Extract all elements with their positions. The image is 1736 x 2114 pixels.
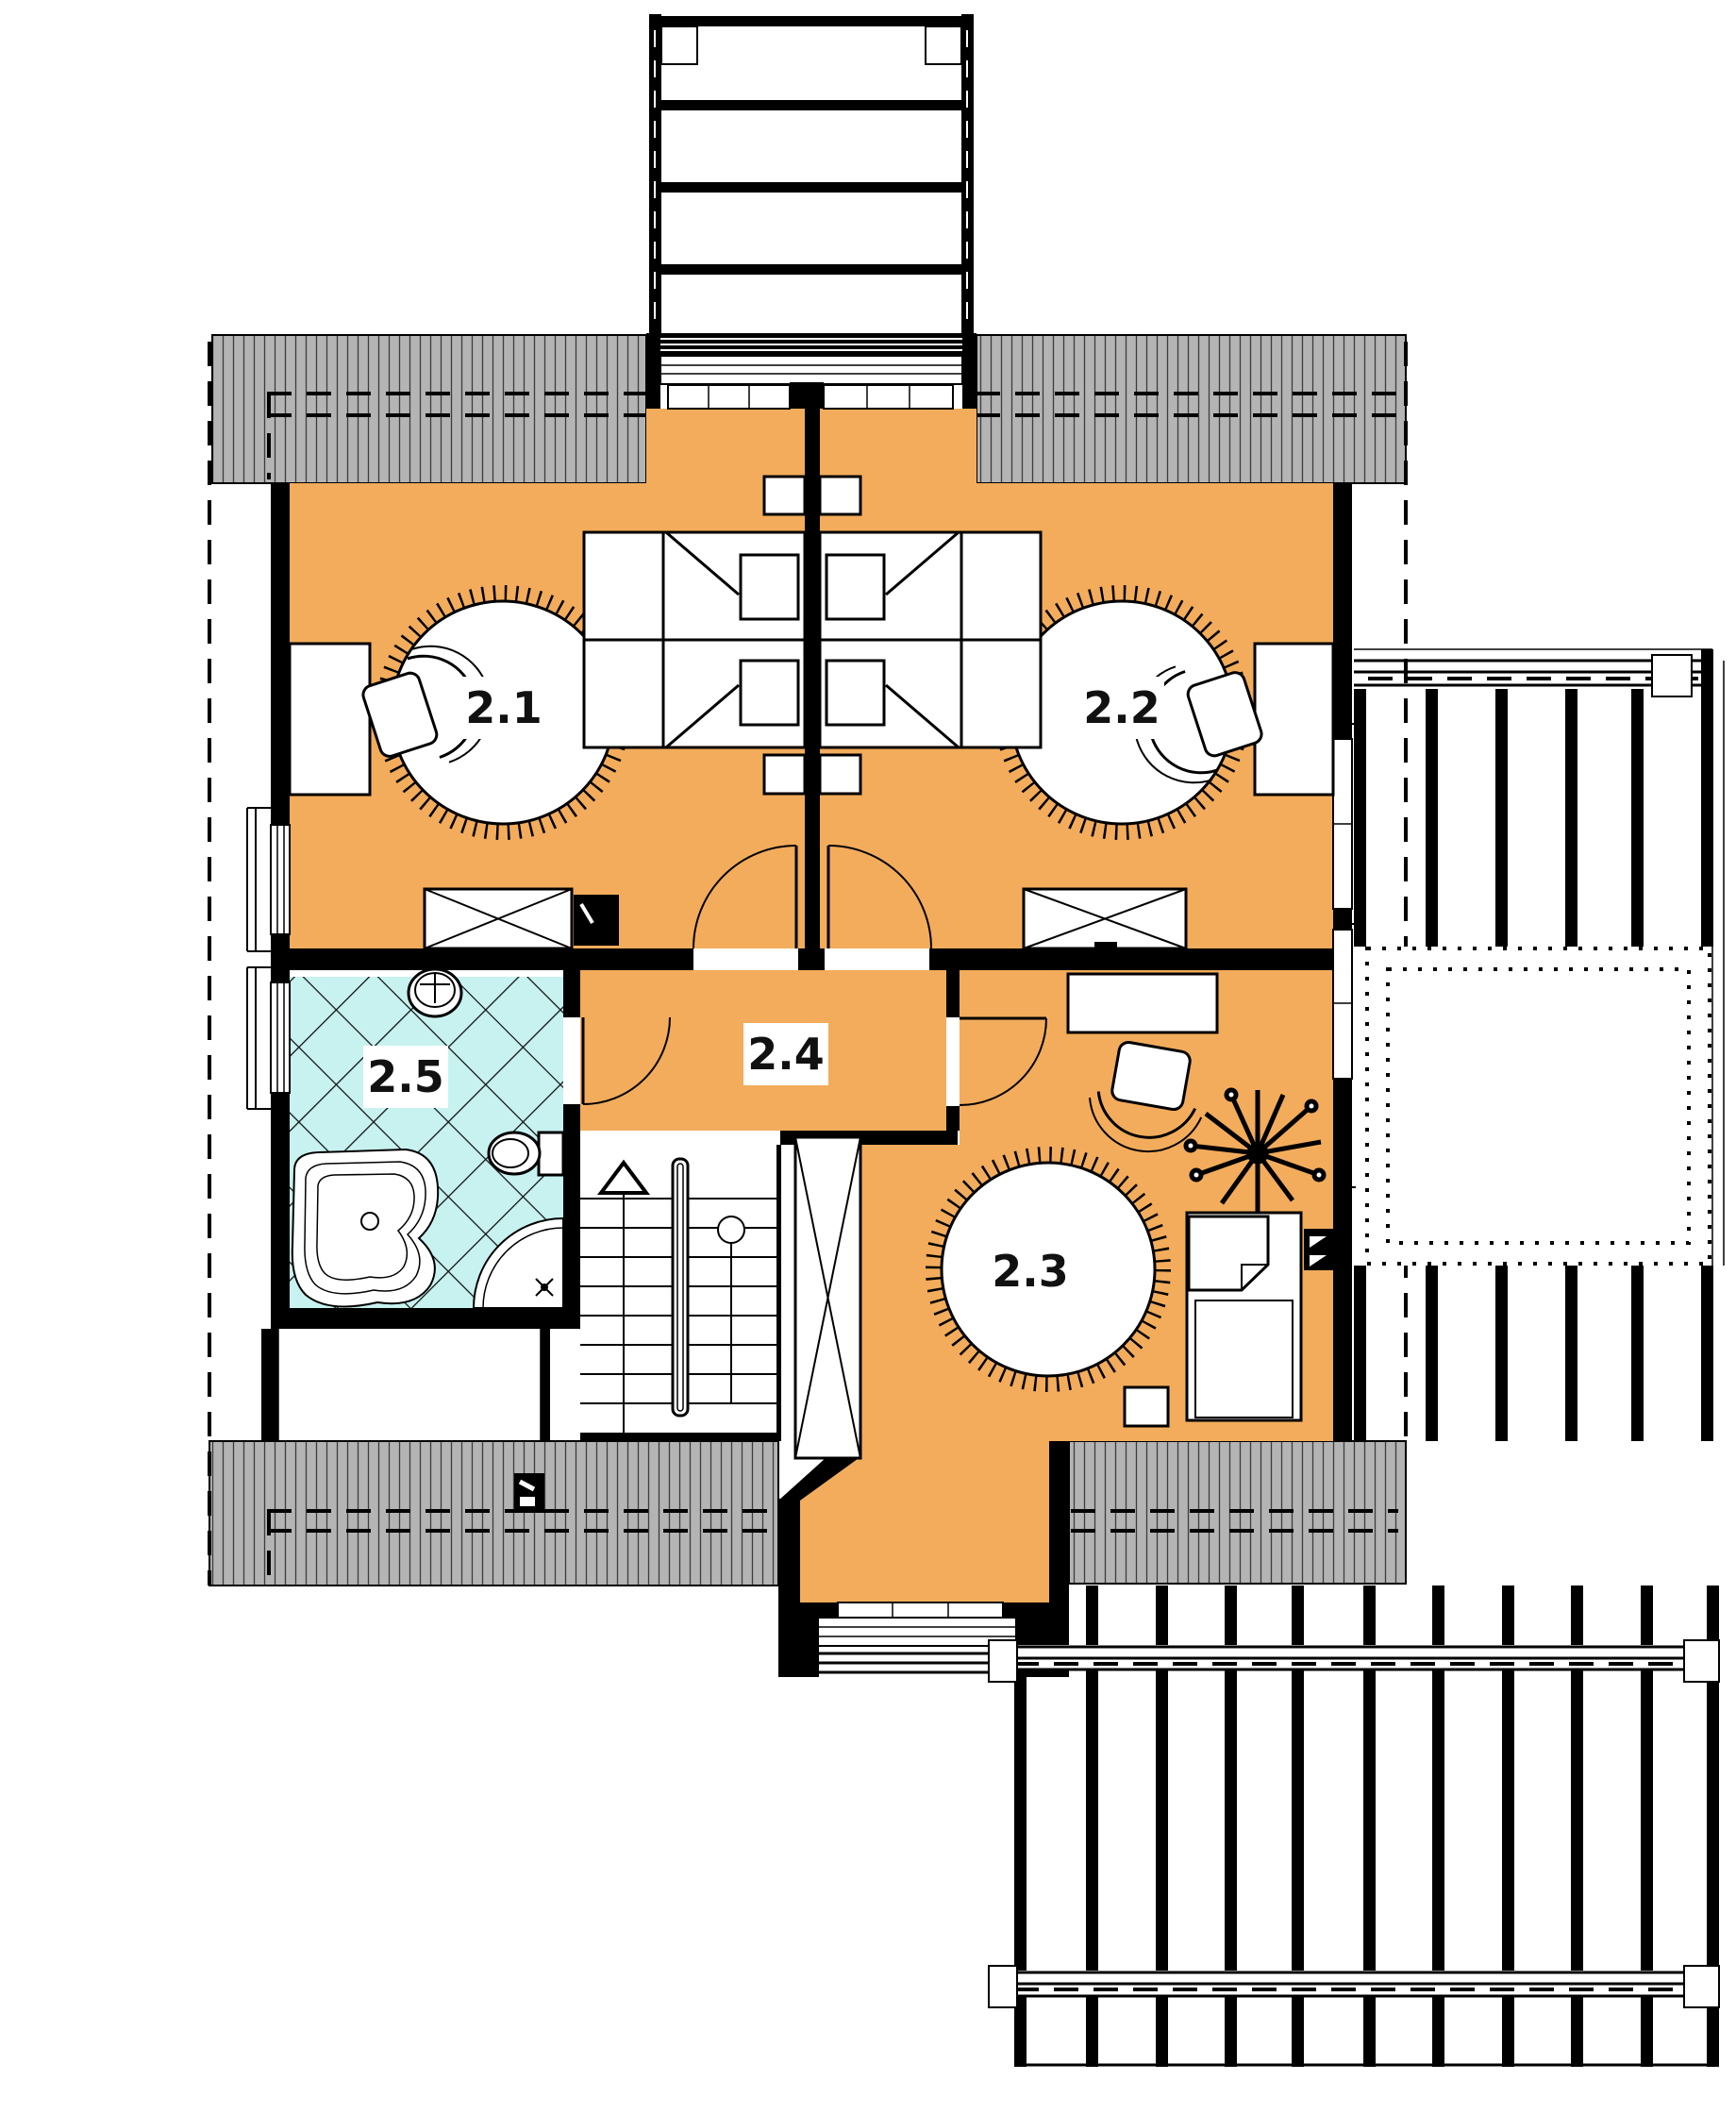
wardrobe xyxy=(1024,889,1186,949)
nightstand xyxy=(764,477,805,514)
floor-plan-canvas: 2.1 2.2 2.3 2.4 2.5 xyxy=(0,0,1736,2114)
balcony-corner-bracket-left xyxy=(661,26,697,64)
blanket xyxy=(1195,1300,1293,1418)
pergola-end-bracket xyxy=(1652,655,1692,696)
desk xyxy=(1068,974,1217,1032)
tv-wall-unit xyxy=(1304,1229,1333,1270)
washbasin xyxy=(409,969,461,1016)
pillow xyxy=(741,555,798,619)
balcony-window xyxy=(838,1602,1003,1618)
nightstand xyxy=(820,755,860,794)
center-partition-wall xyxy=(805,409,820,948)
pillow xyxy=(741,661,798,725)
single-bed xyxy=(1187,1213,1301,1420)
room-label-2-5: 2.5 xyxy=(367,1051,444,1102)
pillow xyxy=(826,555,884,619)
balcony-corner-bracket-right xyxy=(926,26,961,64)
stool xyxy=(1125,1387,1168,1426)
double-bed xyxy=(584,532,805,747)
tv-cabinet xyxy=(574,895,619,946)
pillow xyxy=(826,661,884,725)
nightstand xyxy=(820,477,860,514)
desk xyxy=(1255,644,1333,795)
nightstand xyxy=(764,755,805,794)
room-label-2-4: 2.4 xyxy=(747,1029,825,1080)
room-label-2-2: 2.2 xyxy=(1083,682,1160,733)
toilet xyxy=(489,1132,563,1175)
desk xyxy=(290,644,370,795)
dormer-window-left-pane xyxy=(668,385,790,409)
dormer-window-right-pane xyxy=(824,385,953,409)
tall-wardrobe xyxy=(795,1137,860,1458)
room-label-2-1: 2.1 xyxy=(465,682,542,733)
room-label-2-3: 2.3 xyxy=(992,1246,1069,1297)
double-bed xyxy=(820,532,1041,747)
wardrobe xyxy=(425,889,572,948)
newel-post xyxy=(718,1216,744,1243)
corner-bathtub xyxy=(292,1149,438,1307)
roof-window-icon xyxy=(514,1473,544,1513)
